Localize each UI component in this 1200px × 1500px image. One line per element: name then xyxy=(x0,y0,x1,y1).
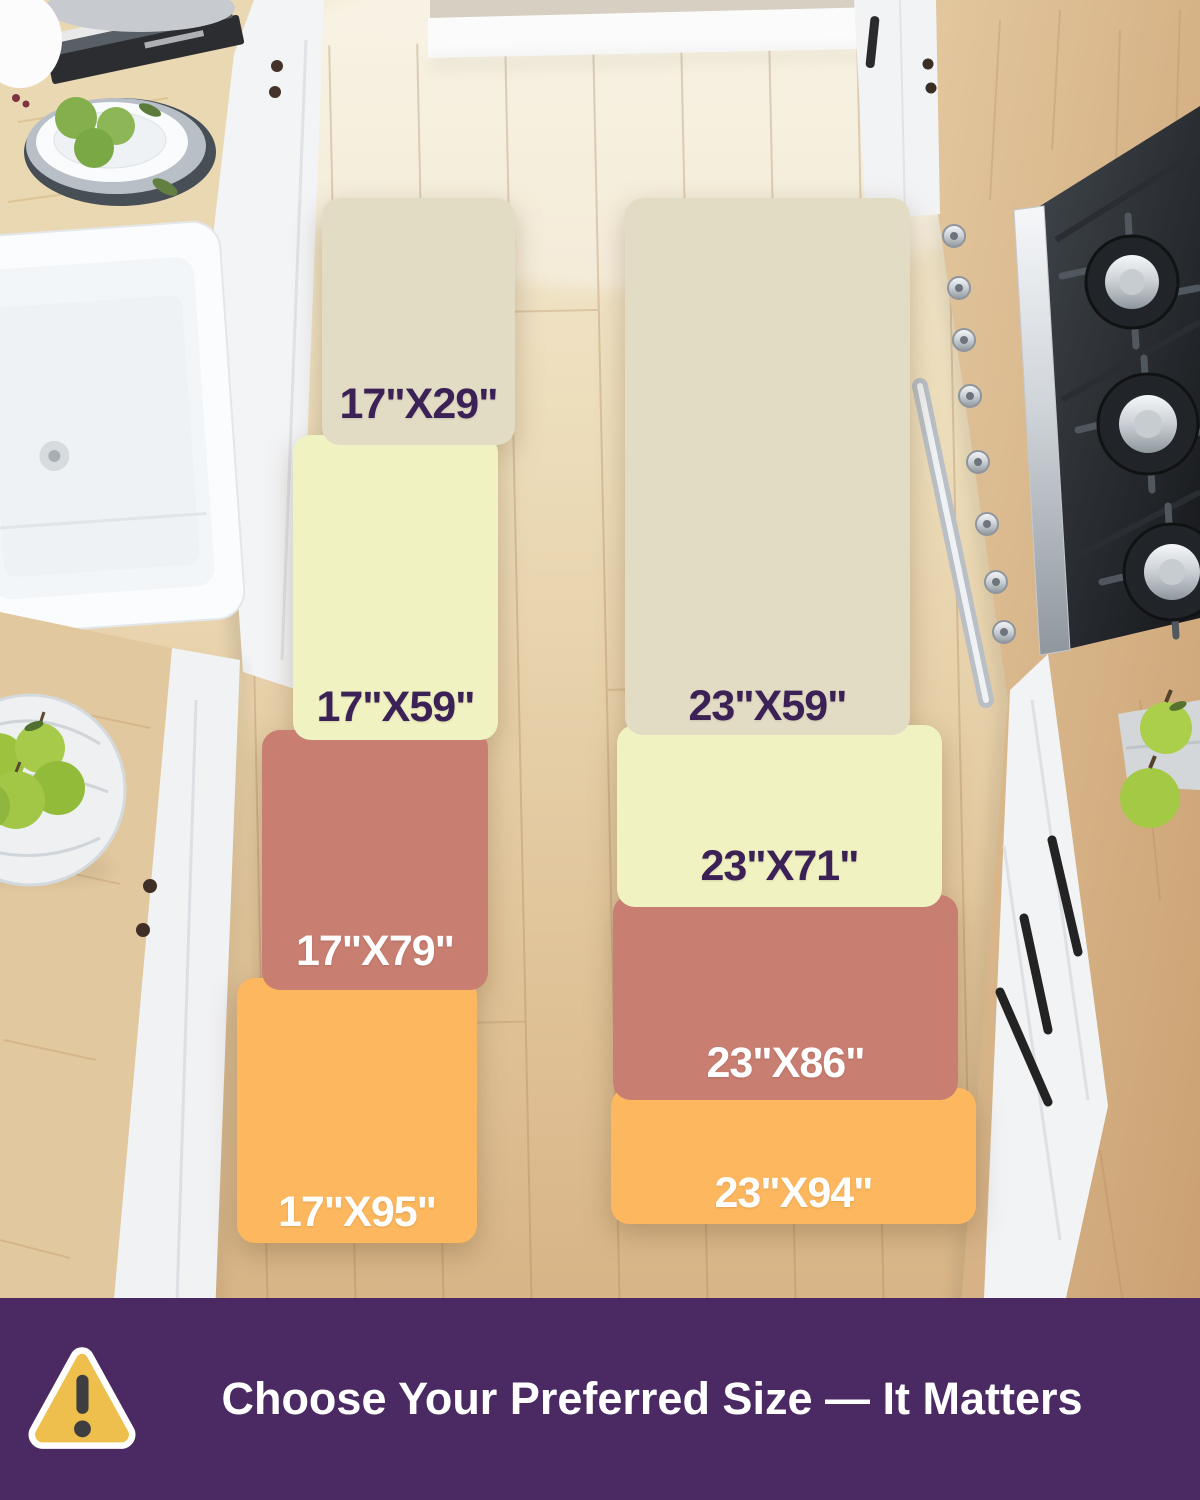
farmhouse-sink xyxy=(0,220,246,636)
product-size-infographic: 17"X29" 17"X59" 17"X79" 17"X95" 23"X59" … xyxy=(0,0,1200,1500)
warning-triangle-icon xyxy=(26,1341,138,1457)
kitchen-scene-illustration xyxy=(0,0,1200,1500)
notice-text: Choose Your Preferred Size — It Matters xyxy=(138,1373,1200,1425)
left-counter xyxy=(0,0,324,690)
notice-banner: Choose Your Preferred Size — It Matters xyxy=(0,1298,1200,1500)
